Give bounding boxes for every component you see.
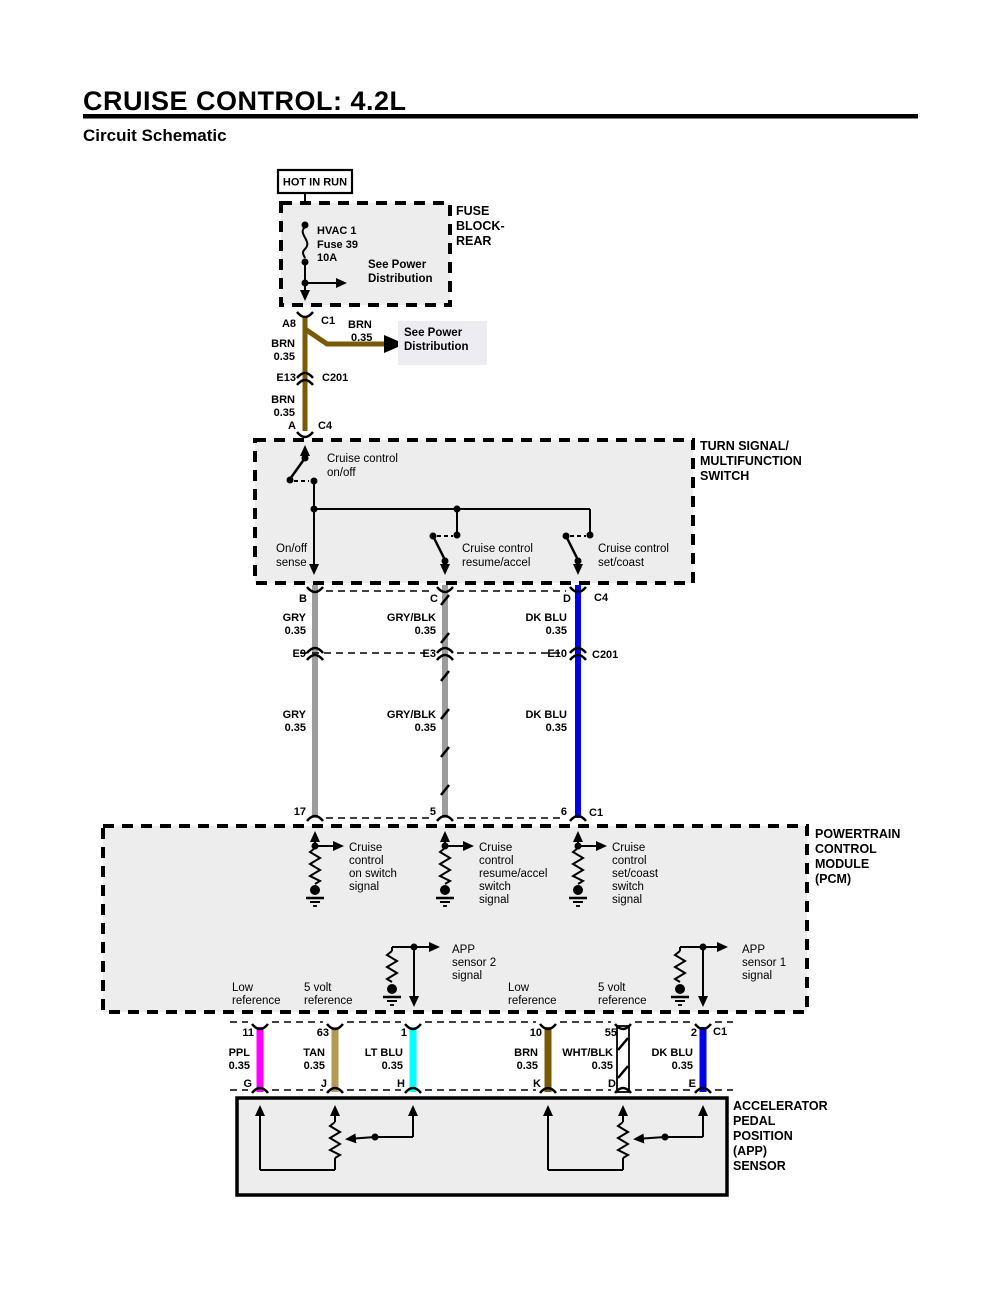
svg-text:0.35: 0.35 [285,722,306,734]
svg-text:sensor 1: sensor 1 [742,957,786,969]
svg-text:signal: signal [612,894,642,906]
svg-text:0.35: 0.35 [517,1060,538,1072]
svg-text:reference: reference [304,995,353,1007]
connector-c1-row-label: C1 [589,807,603,819]
app-sensor-name: ACCELERATOR PEDAL POSITION (APP) SENSOR [733,1099,828,1173]
connector-c4-row-label: C4 [594,592,609,604]
svg-text:DK BLU: DK BLU [525,612,567,624]
svg-text:BRN: BRN [348,319,372,331]
svg-text:WHT/BLK: WHT/BLK [562,1047,613,1059]
svg-text:set/coast: set/coast [598,557,645,569]
fuse-block-name: FUSE BLOCK- REAR [456,204,505,248]
pin-5: 5 [430,806,436,818]
svg-text:on switch: on switch [349,868,397,880]
svg-text:FUSE: FUSE [456,204,489,218]
svg-text:GRY/BLK: GRY/BLK [387,709,436,721]
svg-text:0.35: 0.35 [304,1060,325,1072]
svg-text:55: 55 [605,1027,617,1039]
svg-text:Cruise: Cruise [612,842,645,854]
svg-text:reference: reference [598,995,647,1007]
pin-e10: E10 [547,648,567,660]
connector-a8-icon [297,312,313,317]
svg-text:REAR: REAR [456,234,491,248]
svg-text:Cruise control: Cruise control [327,453,398,465]
svg-text:(APP): (APP) [733,1144,767,1158]
svg-text:0.35: 0.35 [415,625,436,637]
svg-text:0.35: 0.35 [546,722,567,734]
connector-c201-label: C201 [322,372,348,384]
svg-text:10: 10 [530,1027,542,1039]
svg-text:Cruise: Cruise [349,842,382,854]
svg-text:MULTIFUNCTION: MULTIFUNCTION [700,454,802,468]
power-source-label: HOT IN RUN [283,177,347,189]
svg-text:DK BLU: DK BLU [651,1047,693,1059]
wire-labels-lower: GRY 0.35 GRY/BLK 0.35 DK BLU 0.35 [283,709,567,734]
svg-text:GRY: GRY [283,612,307,624]
svg-text:reference: reference [508,995,557,1007]
svg-text:Cruise control: Cruise control [598,543,669,555]
svg-text:APP: APP [452,944,475,956]
svg-text:BLOCK-: BLOCK- [456,219,505,233]
pin-c4: C4 [318,420,333,432]
pin-c1: C1 [321,315,335,327]
wire-labels-upper: GRY 0.35 GRY/BLK 0.35 DK BLU 0.35 [283,612,567,637]
svg-text:SWITCH: SWITCH [700,469,749,483]
connector-a-c4-icon [297,432,313,437]
svg-text:On/off: On/off [276,543,308,555]
svg-text:sensor 2: sensor 2 [452,957,496,969]
pcm-box [103,826,807,1012]
svg-text:See Power: See Power [404,327,463,339]
pin-d: D [563,593,571,605]
svg-text:APP: APP [742,944,765,956]
svg-text:0.35: 0.35 [274,407,295,419]
pin-b: B [299,593,307,605]
svg-text:control: control [349,855,384,867]
svg-text:TURN SIGNAL/: TURN SIGNAL/ [700,439,789,453]
svg-text:GRY: GRY [283,709,307,721]
svg-text:resume/accel: resume/accel [479,868,547,880]
svg-text:HVAC 1: HVAC 1 [317,225,357,237]
svg-text:Low: Low [508,982,530,994]
svg-text:H: H [397,1078,405,1090]
svg-text:signal: signal [742,970,772,982]
svg-text:5 volt: 5 volt [304,982,332,994]
svg-text:D: D [608,1078,616,1090]
svg-text:5 volt: 5 volt [598,982,626,994]
wire-label-brn-lower: BRN 0.35 [271,394,295,419]
svg-text:Distribution: Distribution [368,273,433,285]
svg-text:Fuse 39: Fuse 39 [317,239,358,251]
svg-text:POWERTRAIN: POWERTRAIN [815,827,900,841]
svg-text:BRN: BRN [271,394,295,406]
svg-text:Cruise: Cruise [479,842,512,854]
pin-a: A [288,420,296,432]
pcm-name: POWERTRAIN CONTROL MODULE (PCM) [815,827,900,886]
pin-6: 6 [561,806,567,818]
title-underline [83,114,918,119]
svg-text:signal: signal [479,894,509,906]
pin-c: C [430,593,438,605]
svg-text:Distribution: Distribution [404,341,469,353]
svg-text:switch: switch [479,881,511,893]
mfs-name: TURN SIGNAL/ MULTIFUNCTION SWITCH [700,439,802,483]
svg-text:sense: sense [276,557,307,569]
svg-text:0.35: 0.35 [672,1060,693,1072]
svg-text:SENSOR: SENSOR [733,1159,786,1173]
connector-c201-row-label: C201 [592,649,618,661]
svg-text:control: control [479,855,514,867]
svg-text:Low: Low [232,982,254,994]
svg-text:set/coast: set/coast [612,868,659,880]
svg-text:0.35: 0.35 [351,332,372,344]
svg-text:0.35: 0.35 [415,722,436,734]
pin-e3: E3 [423,648,436,660]
svg-text:0.35: 0.35 [546,625,567,637]
svg-text:switch: switch [612,881,644,893]
schematic-page: CRUISE CONTROL: 4.2L Circuit Schematic H… [0,0,1000,1294]
pin-e9: E9 [293,648,306,660]
wire-label-brn-branch: BRN 0.35 [348,319,372,344]
svg-text:TAN: TAN [303,1047,325,1059]
svg-text:11: 11 [242,1027,254,1039]
svg-text:resume/accel: resume/accel [462,557,530,569]
svg-text:1: 1 [401,1027,407,1039]
wire-label-brn-upper: BRN 0.35 [271,338,295,363]
svg-text:E: E [689,1078,696,1090]
svg-text:MODULE: MODULE [815,857,869,871]
svg-text:0.35: 0.35 [229,1060,250,1072]
svg-text:on/off: on/off [327,467,356,479]
svg-text:See Power: See Power [368,259,427,271]
wire-wht-blk [617,1026,629,1092]
svg-text:J: J [321,1078,327,1090]
svg-text:Cruise control: Cruise control [462,543,533,555]
pin-a8: A8 [282,318,296,330]
svg-text:BRN: BRN [514,1047,538,1059]
svg-text:GRY/BLK: GRY/BLK [387,612,436,624]
page-title: CRUISE CONTROL: 4.2L [83,86,407,116]
svg-text:control: control [612,855,647,867]
svg-text:0.35: 0.35 [274,351,295,363]
wire-gry-blk [441,585,449,818]
svg-text:63: 63 [317,1027,329,1039]
svg-text:10A: 10A [317,252,337,264]
svg-text:LT BLU: LT BLU [365,1047,403,1059]
svg-text:ACCELERATOR: ACCELERATOR [733,1099,828,1113]
svg-text:PPL: PPL [229,1047,251,1059]
svg-text:CONTROL: CONTROL [815,842,877,856]
connector-c1-bottom-label: C1 [713,1026,727,1038]
svg-text:0.35: 0.35 [285,625,306,637]
svg-text:2: 2 [691,1027,697,1039]
svg-text:K: K [533,1078,541,1090]
svg-text:POSITION: POSITION [733,1129,793,1143]
svg-text:0.35: 0.35 [382,1060,403,1072]
svg-text:(PCM): (PCM) [815,872,851,886]
page-subtitle: Circuit Schematic [83,126,227,145]
svg-text:G: G [243,1078,252,1090]
svg-text:BRN: BRN [271,338,295,350]
app-sensor-box [237,1098,727,1195]
fuse-block-box [281,203,450,305]
pin-e13: E13 [276,372,296,384]
svg-text:signal: signal [452,970,482,982]
svg-text:reference: reference [232,995,281,1007]
svg-text:DK BLU: DK BLU [525,709,567,721]
svg-text:signal: signal [349,881,379,893]
circuit-schematic: CRUISE CONTROL: 4.2L Circuit Schematic H… [0,0,1000,1294]
pin-17: 17 [294,806,306,818]
svg-text:PEDAL: PEDAL [733,1114,776,1128]
svg-text:0.35: 0.35 [592,1060,613,1072]
